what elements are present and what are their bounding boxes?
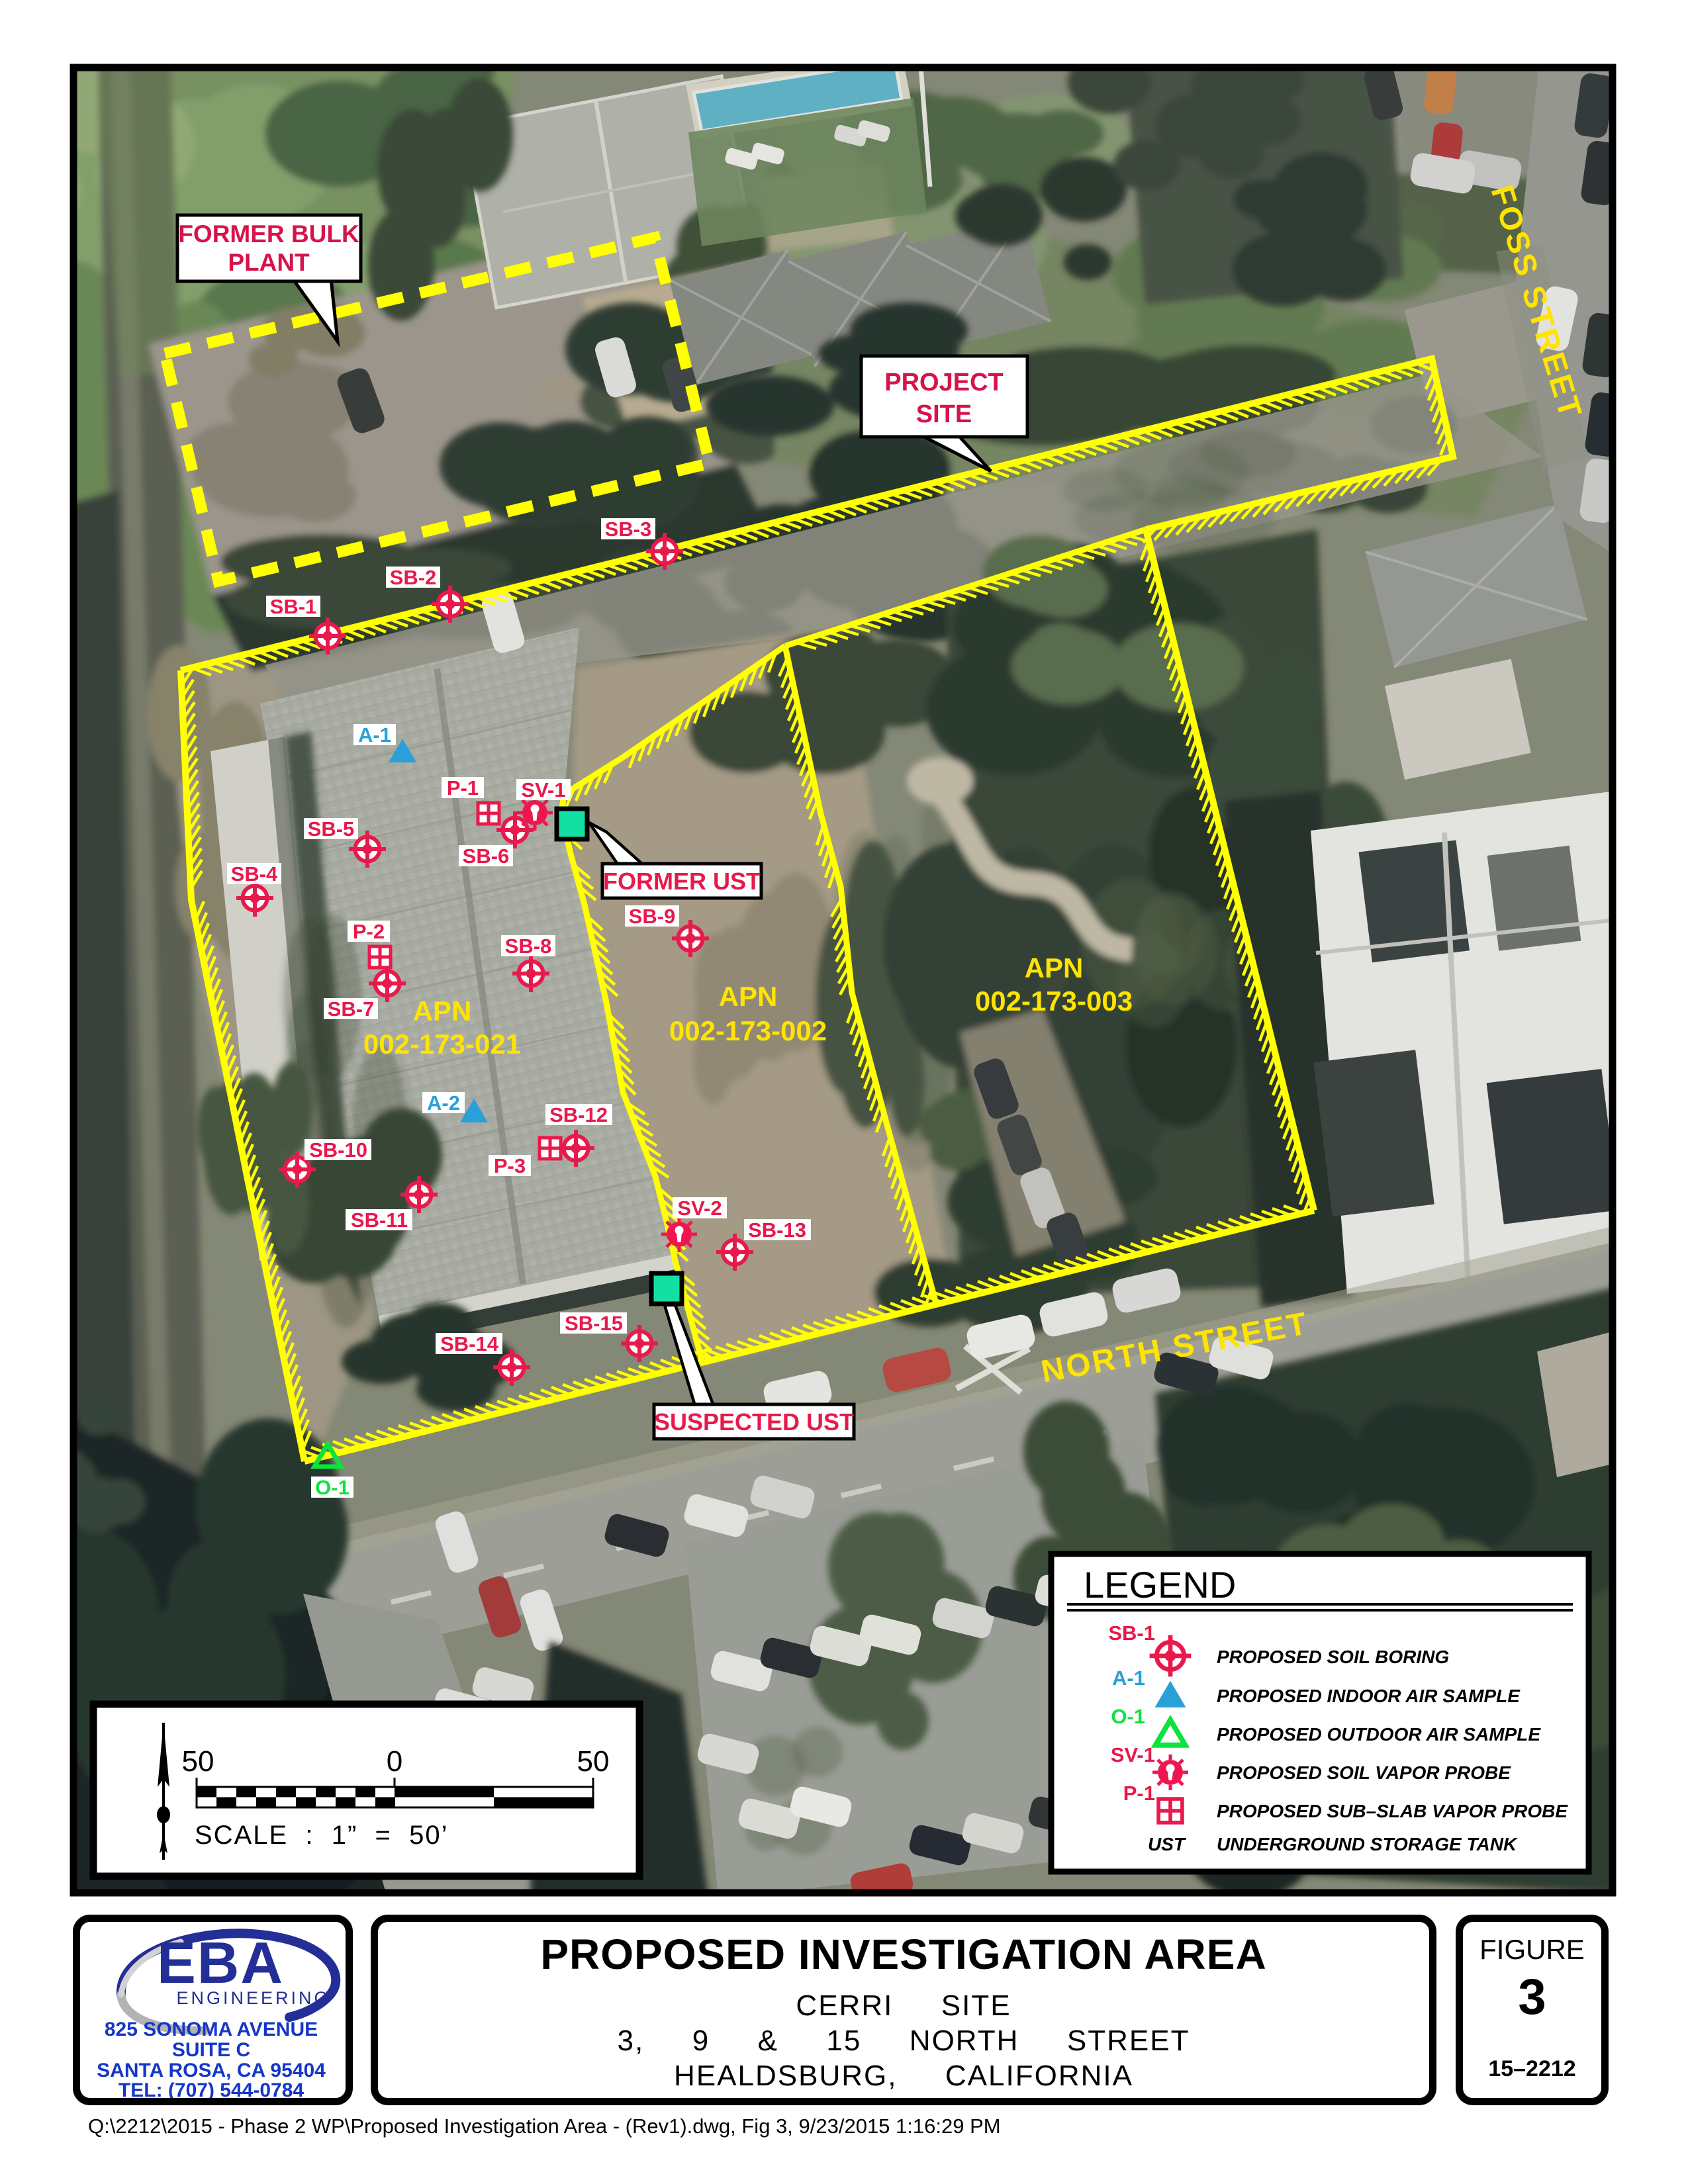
svg-text:PROPOSED OUTDOOR AIR SAMPLE: PROPOSED OUTDOOR AIR SAMPLE	[1217, 1724, 1541, 1745]
svg-text:EBA: EBA	[157, 1930, 284, 1995]
svg-text:SCALE : 1” = 50’: SCALE : 1” = 50’	[195, 1821, 449, 1850]
svg-text:UNDERGROUND STORAGE TANK: UNDERGROUND STORAGE TANK	[1217, 1834, 1518, 1854]
svg-text:ENGINEERING: ENGINEERING	[176, 1988, 330, 2008]
svg-text:0: 0	[387, 1745, 402, 1778]
svg-text:50: 50	[577, 1745, 610, 1778]
svg-text:SV-1: SV-1	[1111, 1743, 1155, 1766]
svg-text:LEGEND: LEGEND	[1084, 1564, 1236, 1606]
svg-text:A-1: A-1	[1112, 1666, 1145, 1690]
svg-text:P-1: P-1	[1123, 1782, 1155, 1805]
svg-text:PROPOSED SUB–SLAB VAPOR PRO: PROPOSED SUB–SLAB VAPOR PROBE	[1217, 1801, 1568, 1821]
svg-text:UST: UST	[1148, 1834, 1187, 1854]
svg-text:PROPOSED INDOOR AIR SAMPLE: PROPOSED INDOOR AIR SAMPLE	[1217, 1686, 1521, 1706]
svg-text:SUITE C: SUITE C	[172, 2039, 250, 2061]
svg-text:825 SONOMA AVENUE: 825 SONOMA AVENUE	[105, 2019, 318, 2040]
svg-text:TEL: (707) 544-0784: TEL: (707) 544-0784	[118, 2079, 304, 2098]
svg-text:PROPOSED SOIL VAPOR PROBE: PROPOSED SOIL VAPOR PROBE	[1217, 1762, 1511, 1783]
svg-text:SB-1: SB-1	[1108, 1621, 1155, 1645]
svg-text:O-1: O-1	[1111, 1705, 1145, 1728]
svg-text:50: 50	[182, 1745, 214, 1778]
svg-text:SANTA ROSA, CA 95404: SANTA ROSA, CA 95404	[97, 2060, 326, 2081]
svg-text:PROPOSED SOIL BORING: PROPOSED SOIL BORING	[1217, 1647, 1449, 1667]
